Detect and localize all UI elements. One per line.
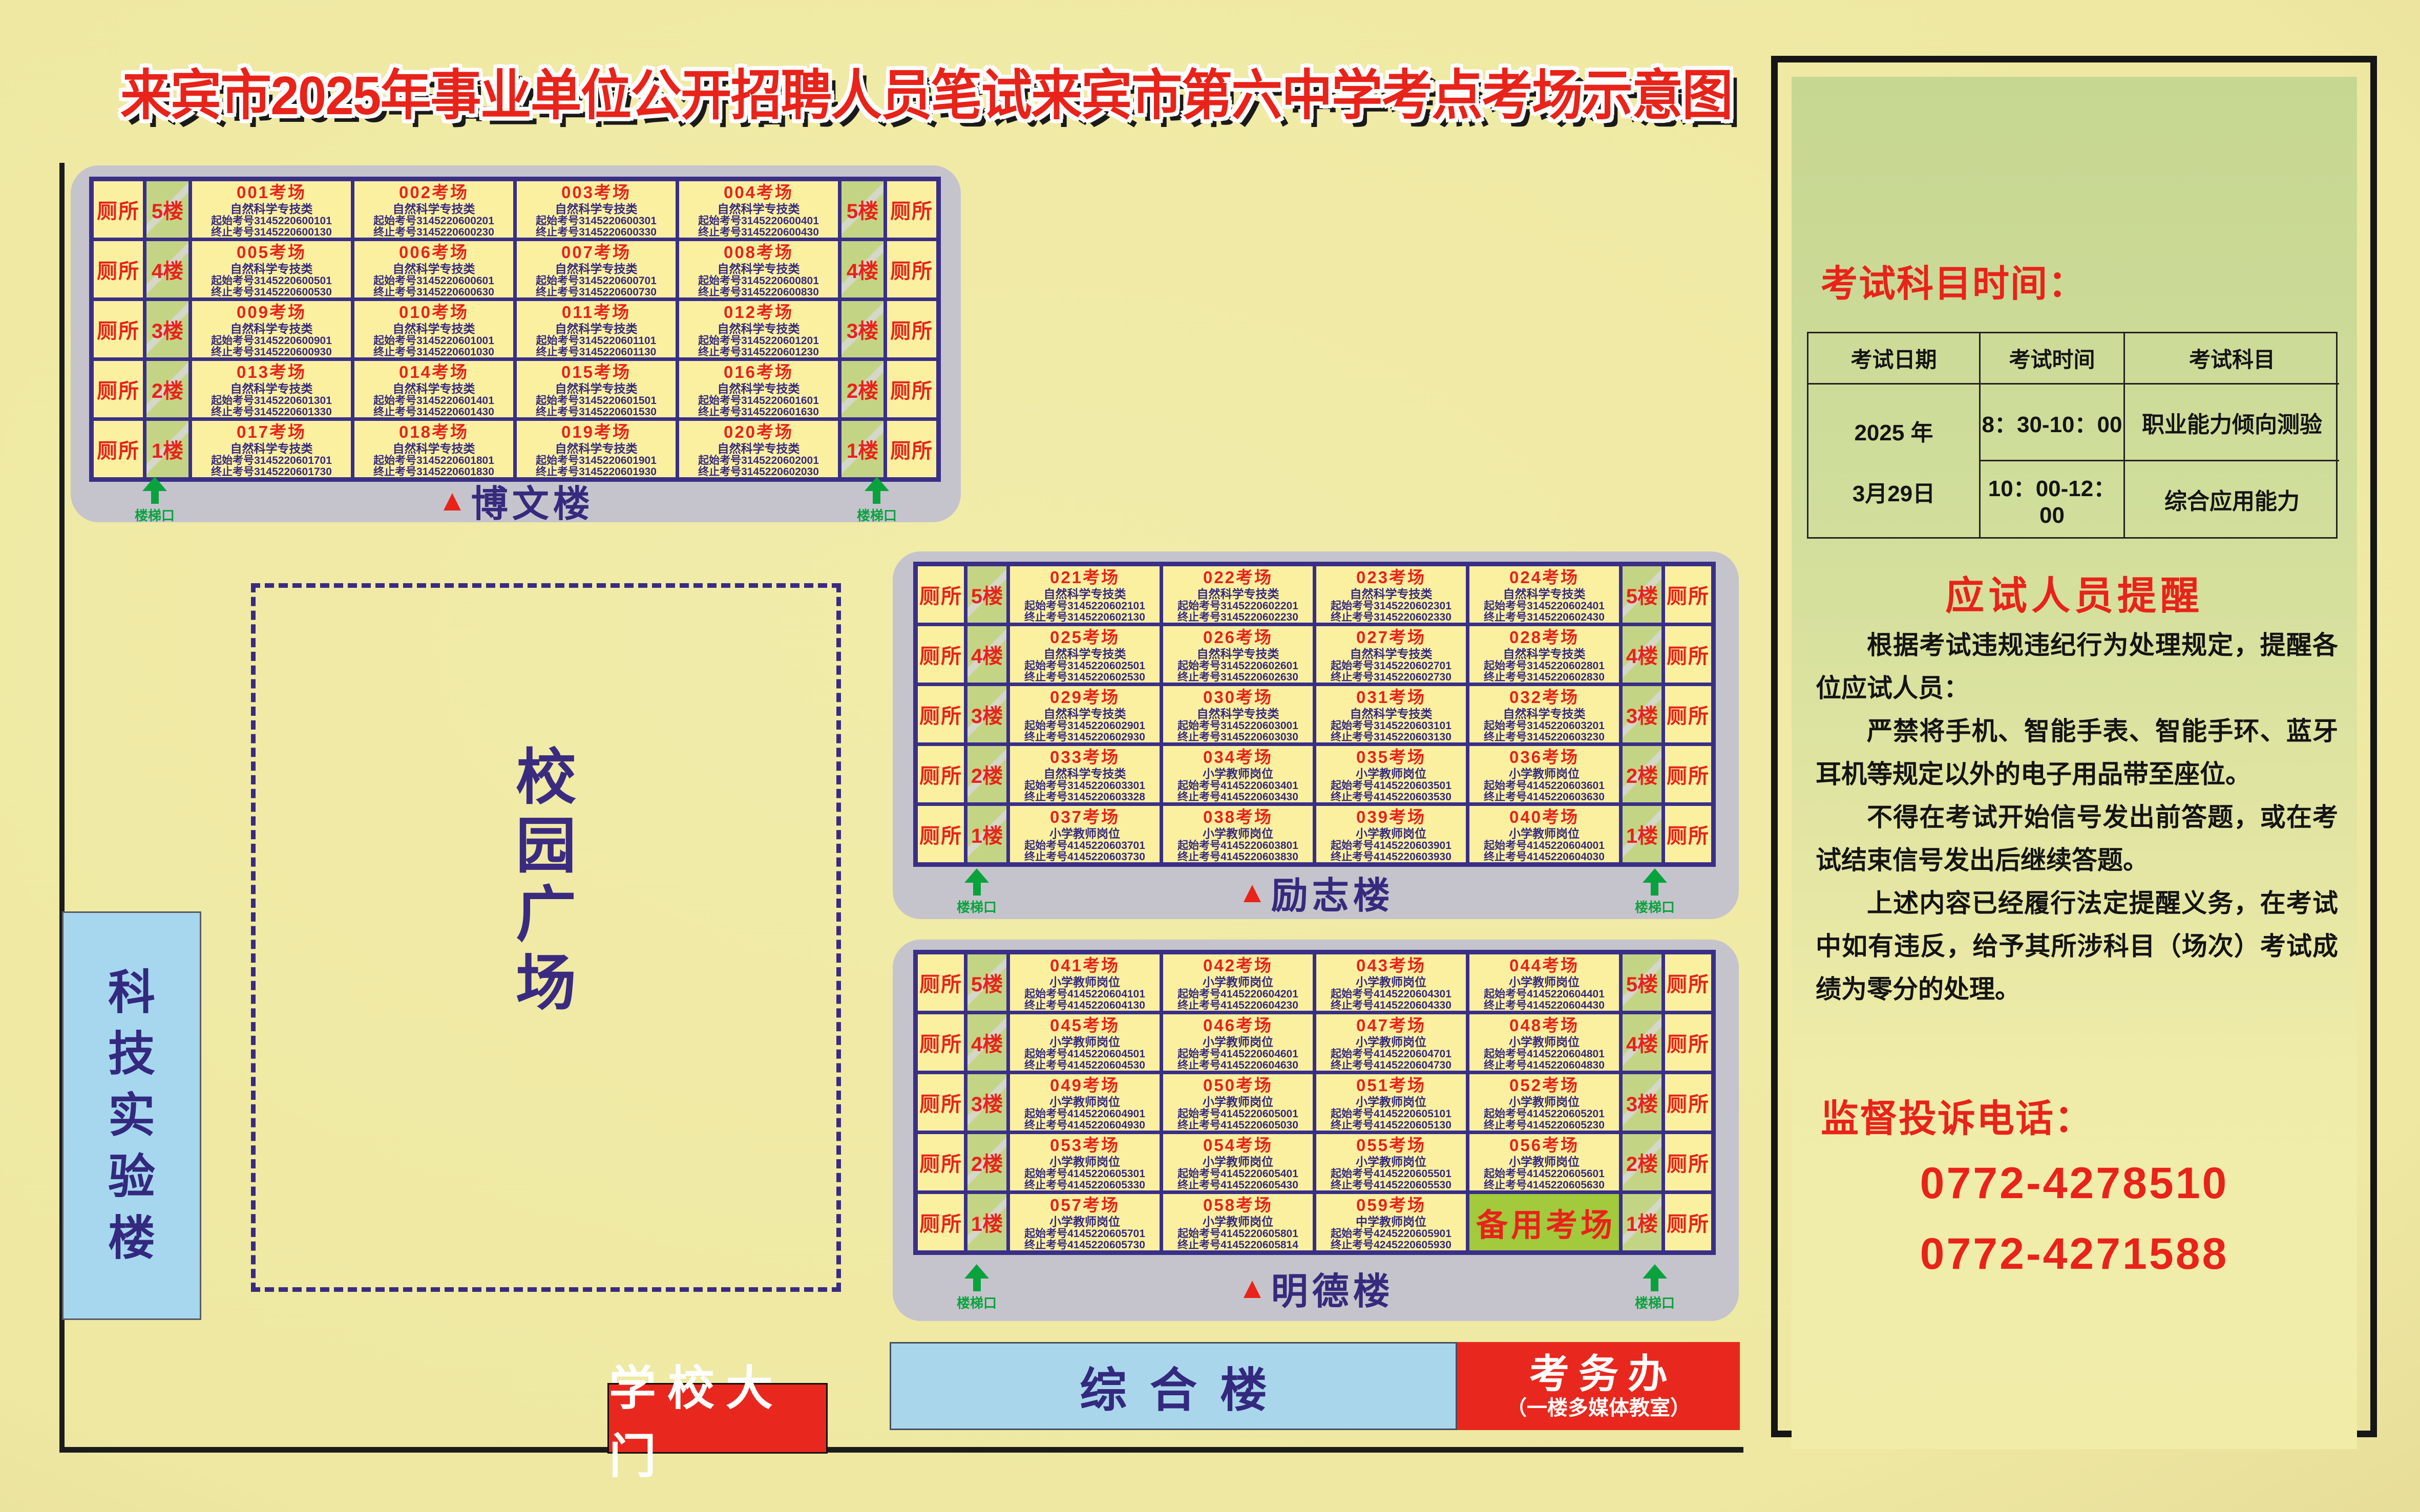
room-cell: 033考场自然科学专技类起始考号3145220603301终止考号3145220…	[1010, 746, 1160, 802]
room-end-number: 终止考号3145220602630	[1177, 672, 1298, 683]
room-number: 046考场	[1203, 1016, 1273, 1035]
room-category: 自然科学专技类	[230, 382, 313, 395]
room-cell: 029考场自然科学专技类起始考号3145220602901终止考号3145220…	[1010, 686, 1160, 742]
room-start-number: 起始考号3145220601001	[373, 335, 494, 347]
room-cell: 059考场中学教师岗位起始考号4245220605901终止考号42452206…	[1316, 1194, 1466, 1250]
room-category: 小学教师岗位	[1509, 975, 1580, 989]
room-cell: 003考场自然科学专技类起始考号3145220600301终止考号3145220…	[517, 181, 676, 238]
floor-label-cell: 1楼	[146, 421, 188, 477]
room-cell: 001考场自然科学专技类起始考号3145220600101终止考号3145220…	[192, 181, 351, 238]
room-cell: 030考场自然科学专技类起始考号3145220603001终止考号3145220…	[1163, 686, 1313, 742]
floor-label-cell: 2楼	[146, 361, 188, 417]
up-arrow-icon	[1651, 883, 1658, 896]
room-end-number: 终止考号3145220601730	[211, 466, 332, 477]
toilet-cell: 厕所	[94, 361, 143, 417]
stair-exit: 楼梯口	[957, 1264, 997, 1312]
plaza-label-char: 校	[516, 748, 576, 808]
floor-label-cell: 5楼	[1623, 566, 1661, 623]
floor-label-cell: 5楼	[1623, 954, 1661, 1011]
room-start-number: 起始考号4145220604501	[1024, 1049, 1145, 1060]
room-end-number: 终止考号4145220605730	[1024, 1240, 1145, 1250]
room-number: 006考场	[399, 243, 469, 262]
up-arrow-icon	[964, 1264, 989, 1279]
room-cell: 047考场小学教师岗位起始考号4145220604701终止考号41452206…	[1316, 1014, 1466, 1071]
room-end-number: 终止考号3145220600830	[698, 287, 819, 297]
room-start-number: 起始考号3145220601201	[698, 335, 819, 347]
up-arrow-icon	[973, 883, 981, 896]
stair-exit-label: 楼梯口	[957, 897, 997, 916]
room-cell: 008考场自然科学专技类起始考号3145220600801终止考号3145220…	[679, 241, 838, 297]
room-start-number: 起始考号4145220605501	[1331, 1168, 1451, 1180]
room-cell: 039考场小学教师岗位起始考号4145220603901终止考号41452206…	[1316, 806, 1466, 862]
room-end-number: 终止考号3145220600230	[373, 227, 494, 238]
room-start-number: 起始考号3145220602201	[1177, 601, 1298, 612]
science-lab-building: 科技实验楼	[62, 911, 201, 1320]
table-header-cell: 考试科目	[2125, 333, 2339, 385]
floor-label-cell: 4楼	[967, 1014, 1006, 1071]
room-end-number: 终止考号4145220603830	[1177, 851, 1298, 862]
room-end-number: 终止考号4145220604530	[1024, 1060, 1145, 1071]
room-category: 自然科学专技类	[1044, 647, 1126, 661]
room-cell: 004考场自然科学专技类起始考号3145220600401终止考号3145220…	[679, 181, 838, 238]
room-category: 自然科学专技类	[1197, 707, 1279, 720]
toilet-cell: 厕所	[918, 686, 964, 742]
room-number: 043考场	[1356, 956, 1426, 975]
room-end-number: 终止考号4145220605330	[1024, 1180, 1145, 1190]
exam-venue-poster: 来宾市2025年事业单位公开招聘人员笔试来宾市第六中学考点考场示意图 校园广场 …	[0, 0, 2420, 1512]
room-number: 034考场	[1203, 748, 1273, 767]
room-category: 小学教师岗位	[1356, 1035, 1426, 1049]
room-cell: 005考场自然科学专技类起始考号3145220600501终止考号3145220…	[192, 241, 351, 297]
room-end-number: 终止考号3145220600730	[536, 287, 657, 297]
room-end-number: 终止考号3145220603230	[1484, 732, 1605, 742]
room-end-number: 终止考号3145220600530	[211, 287, 332, 297]
room-number: 013考场	[237, 363, 306, 382]
building-lizhi: 厕所5楼021考场自然科学专技类起始考号3145220602101终止考号314…	[893, 551, 1739, 919]
room-number: 020考场	[724, 422, 793, 442]
building-triangle-icon: ▲	[1237, 1271, 1267, 1305]
floor-label-cell: 3楼	[967, 686, 1006, 742]
complex-building-label: 综合楼	[1080, 1352, 1290, 1420]
room-number: 051考场	[1356, 1076, 1426, 1095]
room-number: 033考场	[1050, 748, 1120, 767]
room-start-number: 起始考号4145220605401	[1177, 1168, 1298, 1180]
room-category: 小学教师岗位	[1356, 975, 1426, 989]
reminder-heading: 应试人员提醒	[1792, 564, 2357, 621]
room-cell: 021考场自然科学专技类起始考号3145220602101终止考号3145220…	[1010, 566, 1160, 623]
room-end-number: 终止考号3145220602130	[1024, 612, 1145, 623]
room-number: 035考场	[1356, 748, 1426, 767]
room-start-number: 起始考号4145220604901	[1024, 1109, 1145, 1120]
room-end-number: 终止考号3145220602230	[1177, 612, 1298, 623]
room-start-number: 起始考号3145220602301	[1331, 601, 1451, 612]
toilet-cell: 厕所	[1665, 686, 1711, 742]
complex-building: 综合楼	[890, 1342, 1457, 1430]
toilet-cell: 厕所	[887, 301, 936, 357]
floor-label-cell: 2楼	[1623, 1134, 1661, 1190]
room-category: 自然科学专技类	[1044, 707, 1126, 720]
room-number: 037考场	[1050, 807, 1120, 827]
room-category: 小学教师岗位	[1203, 1215, 1273, 1228]
room-end-number: 终止考号4145220605630	[1484, 1180, 1605, 1190]
building-name: ▲博文楼	[437, 474, 594, 527]
room-cell: 031考场自然科学专技类起始考号3145220603101终止考号3145220…	[1316, 686, 1466, 742]
room-category: 自然科学专技类	[1503, 647, 1586, 661]
toilet-cell: 厕所	[1665, 1134, 1711, 1190]
building-triangle-icon: ▲	[437, 483, 467, 518]
floor-label-cell: 1楼	[841, 421, 883, 477]
stair-exit-label: 楼梯口	[957, 1293, 997, 1312]
room-cell: 018考场自然科学专技类起始考号3145220601801终止考号3145220…	[354, 421, 513, 477]
toilet-cell: 厕所	[1665, 746, 1711, 802]
room-start-number: 起始考号4145220605701	[1024, 1228, 1145, 1240]
room-category: 自然科学专技类	[718, 442, 800, 455]
floor-label-cell: 4楼	[967, 626, 1006, 683]
room-number: 026考场	[1203, 628, 1273, 647]
building-name-label: 励志楼	[1271, 865, 1394, 919]
up-arrow-icon	[865, 477, 889, 491]
room-start-number: 起始考号3145220601601	[698, 395, 819, 407]
room-number: 041考场	[1050, 956, 1120, 975]
room-end-number: 终止考号3145220601630	[698, 407, 819, 417]
room-start-number: 起始考号3145220601401	[373, 395, 494, 407]
floor-label-cell: 3楼	[1623, 686, 1661, 742]
building-grid: 厕所5楼001考场自然科学专技类起始考号3145220600101终止考号314…	[89, 177, 941, 482]
room-end-number: 终止考号3145220601230	[698, 347, 819, 357]
room-number: 001考场	[237, 183, 306, 202]
room-number: 054考场	[1203, 1136, 1273, 1155]
stair-exit-label: 楼梯口	[1635, 1293, 1675, 1312]
room-start-number: 起始考号3145220600901	[211, 335, 332, 347]
room-end-number: 终止考号3145220600130	[211, 227, 332, 238]
room-cell: 014考场自然科学专技类起始考号3145220601401终止考号3145220…	[354, 361, 513, 417]
toilet-cell: 厕所	[887, 421, 936, 477]
room-number: 049考场	[1050, 1076, 1120, 1095]
room-cell: 042考场小学教师岗位起始考号4145220604201终止考号41452206…	[1163, 954, 1313, 1011]
room-category: 小学教师岗位	[1356, 827, 1426, 840]
floor-label-cell: 5楼	[841, 181, 883, 238]
room-end-number: 终止考号3145220602030	[698, 466, 819, 477]
room-category: 自然科学专技类	[1503, 587, 1586, 601]
floor-label-cell: 5楼	[967, 566, 1006, 623]
room-end-number: 终止考号3145220603030	[1177, 732, 1298, 742]
toilet-cell: 厕所	[887, 361, 936, 417]
table-subject-cell: 综合应用能力	[2125, 461, 2339, 537]
stair-exit: 楼梯口	[1635, 868, 1675, 916]
toilet-cell: 厕所	[918, 1014, 964, 1071]
room-number: 045考场	[1050, 1016, 1120, 1035]
toilet-cell: 厕所	[1665, 1014, 1711, 1071]
reserve-room-label: 备用考场	[1476, 1199, 1615, 1245]
up-arrow-icon	[1643, 868, 1667, 883]
room-category: 自然科学专技类	[230, 262, 313, 275]
room-category: 自然科学专技类	[718, 262, 800, 275]
room-cell: 048考场小学教师岗位起始考号4145220604801终止考号41452206…	[1469, 1014, 1619, 1071]
room-cell: 041考场小学教师岗位起始考号4145220604101终止考号41452206…	[1010, 954, 1160, 1011]
toilet-cell: 厕所	[94, 421, 143, 477]
room-start-number: 起始考号4145220605601	[1484, 1168, 1605, 1180]
floor-label-cell: 3楼	[841, 301, 883, 357]
room-start-number: 起始考号4145220604601	[1177, 1049, 1298, 1060]
room-start-number: 起始考号4145220604201	[1177, 989, 1298, 1000]
floor-label-cell: 5楼	[967, 954, 1006, 1011]
school-gate: 学校大门	[607, 1383, 828, 1454]
room-end-number: 终止考号4145220605530	[1331, 1180, 1451, 1190]
building-bottom-strip: 楼梯口▲博文楼楼梯口	[71, 480, 961, 520]
room-number: 007考场	[561, 243, 631, 262]
room-category: 自然科学专技类	[718, 382, 800, 395]
room-start-number: 起始考号4145220604101	[1024, 989, 1145, 1000]
room-start-number: 起始考号4145220605801	[1177, 1228, 1298, 1240]
exam-office: 考务办 （一楼多媒体教室）	[1457, 1342, 1740, 1430]
table-header-cell: 考试日期	[1808, 333, 1981, 385]
room-end-number: 终止考号4245220605930	[1331, 1240, 1451, 1250]
room-number: 027考场	[1356, 628, 1426, 647]
floor-label-cell: 1楼	[967, 806, 1006, 862]
room-cell: 010考场自然科学专技类起始考号3145220601001终止考号3145220…	[354, 301, 513, 357]
stair-exit-label: 楼梯口	[135, 505, 175, 524]
room-category: 自然科学专技类	[1350, 587, 1433, 601]
toilet-cell: 厕所	[1665, 566, 1711, 623]
room-start-number: 起始考号3145220600501	[211, 275, 332, 287]
room-category: 自然科学专技类	[393, 382, 475, 395]
floor-label-cell: 5楼	[146, 181, 188, 238]
room-start-number: 起始考号4145220605001	[1177, 1109, 1298, 1120]
toilet-cell: 厕所	[918, 626, 964, 683]
complaint-heading: 监督投诉电话：	[1821, 1088, 2093, 1143]
room-cell: 035考场小学教师岗位起始考号4145220603501终止考号41452206…	[1316, 746, 1466, 802]
floor-label-cell: 3楼	[146, 301, 188, 357]
room-cell: 006考场自然科学专技类起始考号3145220600601终止考号3145220…	[354, 241, 513, 297]
room-category: 小学教师岗位	[1049, 1035, 1120, 1049]
toilet-cell: 厕所	[94, 181, 143, 238]
room-cell: 011考场自然科学专技类起始考号3145220601101终止考号3145220…	[517, 301, 676, 357]
building-name-label: 明德楼	[1271, 1261, 1394, 1315]
room-category: 小学教师岗位	[1049, 1095, 1120, 1109]
plaza-label-char: 广	[516, 885, 576, 945]
room-end-number: 终止考号3145220600930	[211, 347, 332, 357]
room-category: 小学教师岗位	[1509, 767, 1580, 780]
up-arrow-icon	[973, 1279, 981, 1291]
room-category: 自然科学专技类	[555, 382, 638, 395]
room-number: 017考场	[237, 422, 306, 442]
room-category: 自然科学专技类	[1044, 767, 1126, 780]
building-name-label: 博文楼	[471, 474, 594, 527]
room-cell: 055考场小学教师岗位起始考号4145220605501终止考号41452206…	[1316, 1134, 1466, 1190]
phone-number: 0772-4271588	[1792, 1219, 2357, 1289]
reminder-paragraph: 不得在考试开始信号发出前答题，或在考试结束信号发出后继续答题。	[1816, 796, 2338, 882]
room-cell: 050考场小学教师岗位起始考号4145220605001终止考号41452206…	[1163, 1074, 1313, 1131]
room-cell: 049考场小学教师岗位起始考号4145220604901终止考号41452206…	[1010, 1074, 1160, 1131]
room-cell: 038考场小学教师岗位起始考号4145220603801终止考号41452206…	[1163, 806, 1313, 862]
room-cell: 026考场自然科学专技类起始考号3145220602601终止考号3145220…	[1163, 626, 1313, 683]
room-cell: 040考场小学教师岗位起始考号4145220604001终止考号41452206…	[1469, 806, 1619, 862]
phone-number: 0772-4278510	[1792, 1148, 2357, 1219]
room-start-number: 起始考号4145220604801	[1484, 1049, 1605, 1060]
room-category: 小学教师岗位	[1356, 767, 1426, 780]
room-number: 057考场	[1050, 1196, 1120, 1215]
room-cell: 015考场自然科学专技类起始考号3145220601501终止考号3145220…	[517, 361, 676, 417]
room-cell: 052考场小学教师岗位起始考号4145220605201终止考号41452206…	[1469, 1074, 1619, 1131]
room-start-number: 起始考号3145220600601	[373, 275, 494, 287]
up-arrow-icon	[142, 477, 167, 491]
room-end-number: 终止考号3145220601430	[373, 407, 494, 417]
room-cell: 056考场小学教师岗位起始考号4145220605601终止考号41452206…	[1469, 1134, 1619, 1190]
room-category: 小学教师岗位	[1356, 1095, 1426, 1109]
room-start-number: 起始考号4145220603801	[1177, 840, 1298, 851]
room-category: 自然科学专技类	[1044, 587, 1126, 601]
room-number: 053考场	[1050, 1136, 1120, 1155]
room-number: 004考场	[724, 183, 793, 202]
room-end-number: 终止考号4145220604330	[1331, 1000, 1451, 1011]
room-number: 029考场	[1050, 688, 1120, 707]
room-start-number: 起始考号3145220600101	[211, 216, 332, 227]
stair-exit: 楼梯口	[1635, 1264, 1675, 1312]
room-end-number: 终止考号3145220601330	[211, 407, 332, 417]
room-number: 036考场	[1509, 748, 1579, 767]
up-arrow-icon	[964, 868, 989, 883]
floor-label-cell: 2楼	[967, 746, 1006, 802]
room-cell: 023考场自然科学专技类起始考号3145220602301终止考号3145220…	[1316, 566, 1466, 623]
floor-label-cell: 4楼	[146, 241, 188, 297]
room-end-number: 终止考号4145220604430	[1484, 1000, 1605, 1011]
room-start-number: 起始考号3145220601701	[211, 455, 332, 466]
building-grid: 厕所5楼021考场自然科学专技类起始考号3145220602101终止考号314…	[913, 562, 1716, 867]
toilet-cell: 厕所	[887, 181, 936, 238]
room-start-number: 起始考号4145220605201	[1484, 1109, 1605, 1120]
room-start-number: 起始考号3145220600401	[698, 216, 819, 227]
up-arrow-icon	[873, 491, 880, 504]
room-cell: 022考场自然科学专技类起始考号3145220602201终止考号3145220…	[1163, 566, 1313, 623]
room-cell: 013考场自然科学专技类起始考号3145220601301终止考号3145220…	[192, 361, 351, 417]
reminder-paragraph: 严禁将手机、智能手表、智能手环、蓝牙耳机等规定以外的电子用品带至座位。	[1816, 710, 2338, 796]
room-number: 025考场	[1050, 628, 1120, 647]
room-category: 小学教师岗位	[1203, 1155, 1273, 1168]
room-number: 058考场	[1203, 1196, 1273, 1215]
room-start-number: 起始考号4145220604701	[1331, 1049, 1451, 1060]
room-category: 小学教师岗位	[1203, 1095, 1273, 1109]
plaza-label-char: 场	[516, 953, 576, 1014]
room-cell: 002考场自然科学专技类起始考号3145220600201终止考号3145220…	[354, 181, 513, 238]
room-end-number: 终止考号4145220603430	[1177, 792, 1298, 802]
table-time-cell: 10：00-12：00	[1981, 461, 2125, 537]
room-end-number: 终止考号4145220603530	[1331, 792, 1451, 802]
room-category: 自然科学专技类	[230, 202, 313, 216]
room-end-number: 终止考号3145220600430	[698, 227, 819, 238]
room-category: 自然科学专技类	[1197, 587, 1279, 601]
room-cell: 020考场自然科学专技类起始考号3145220602001终止考号3145220…	[679, 421, 838, 477]
room-number: 022考场	[1203, 568, 1273, 587]
reminder-paragraph: 根据考试违规违纪行为处理规定，提醒各位应试人员：	[1816, 624, 2338, 710]
room-start-number: 起始考号3145220603101	[1331, 720, 1451, 732]
room-start-number: 起始考号3145220600801	[698, 275, 819, 287]
room-category: 小学教师岗位	[1203, 1035, 1273, 1049]
science-building-label-char: 实	[108, 1092, 155, 1139]
room-end-number: 终止考号4145220605814	[1177, 1240, 1298, 1250]
room-number: 008考场	[724, 243, 793, 262]
room-category: 小学教师岗位	[1509, 1155, 1580, 1168]
toilet-cell: 厕所	[918, 1134, 964, 1190]
room-category: 小学教师岗位	[1509, 1035, 1580, 1049]
room-number: 012考场	[724, 303, 793, 322]
room-end-number: 终止考号3145220603328	[1024, 792, 1145, 802]
room-end-number: 终止考号4145220605130	[1331, 1120, 1451, 1131]
toilet-cell: 厕所	[1665, 1194, 1711, 1250]
room-number: 032考场	[1509, 688, 1579, 707]
building-name: ▲励志楼	[1237, 865, 1394, 919]
toilet-cell: 厕所	[94, 301, 143, 357]
table-subject-cell: 职业能力倾向测验	[2125, 385, 2339, 461]
toilet-cell: 厕所	[918, 954, 964, 1011]
room-end-number: 终止考号4145220604930	[1024, 1120, 1145, 1131]
room-category: 小学教师岗位	[1203, 975, 1273, 989]
room-start-number: 起始考号4145220605301	[1024, 1168, 1145, 1180]
room-category: 小学教师岗位	[1356, 1155, 1426, 1168]
toilet-cell: 厕所	[918, 746, 964, 802]
reminder-paragraphs: 根据考试违规违纪行为处理规定，提醒各位应试人员：严禁将手机、智能手表、智能手环、…	[1816, 624, 2338, 1011]
room-cell: 054考场小学教师岗位起始考号4145220605401终止考号41452206…	[1163, 1134, 1313, 1190]
room-number: 052考场	[1509, 1076, 1579, 1095]
room-number: 048考场	[1509, 1016, 1579, 1035]
room-cell: 009考场自然科学专技类起始考号3145220600901终止考号3145220…	[192, 301, 351, 357]
room-cell: 034考场小学教师岗位起始考号4145220603401终止考号41452206…	[1163, 746, 1313, 802]
room-cell: 057考场小学教师岗位起始考号4145220605701终止考号41452206…	[1010, 1194, 1160, 1250]
campus-plaza-label: 校园广场	[251, 748, 841, 1014]
room-number: 028考场	[1509, 628, 1579, 647]
room-cell: 019考场自然科学专技类起始考号3145220601901终止考号3145220…	[517, 421, 676, 477]
schedule-table: 考试日期考试时间考试科目2025 年3月29日8：30-10：00职业能力倾向测…	[1807, 332, 2338, 539]
room-end-number: 终止考号4145220604230	[1177, 1000, 1298, 1011]
room-end-number: 终止考号4145220603630	[1484, 792, 1605, 802]
room-number: 005考场	[237, 243, 306, 262]
room-end-number: 终止考号3145220601130	[536, 347, 657, 357]
room-category: 小学教师岗位	[1203, 767, 1273, 780]
floor-label-cell: 4楼	[1623, 1014, 1661, 1071]
room-cell: 058考场小学教师岗位起始考号4145220605801终止考号41452206…	[1163, 1194, 1313, 1250]
room-end-number: 终止考号4145220604030	[1484, 851, 1605, 862]
room-cell: 045考场小学教师岗位起始考号4145220604501终止考号41452206…	[1010, 1014, 1160, 1071]
room-number: 030考场	[1203, 688, 1273, 707]
room-cell: 046考场小学教师岗位起始考号4145220604601终止考号41452206…	[1163, 1014, 1313, 1071]
room-category: 自然科学专技类	[393, 322, 475, 335]
up-arrow-icon	[1643, 1264, 1667, 1279]
room-category: 小学教师岗位	[1509, 1095, 1580, 1109]
room-end-number: 终止考号3145220603130	[1331, 732, 1451, 742]
room-number: 002考场	[399, 183, 469, 202]
room-category: 自然科学专技类	[718, 322, 800, 335]
room-category: 自然科学专技类	[555, 442, 638, 455]
room-start-number: 起始考号3145220602001	[698, 455, 819, 466]
table-date-line: 2025 年	[1854, 414, 1933, 447]
room-category: 中学教师岗位	[1356, 1215, 1426, 1228]
room-category: 自然科学专技类	[1197, 647, 1279, 661]
room-start-number: 起始考号3145220600701	[536, 275, 657, 287]
table-time-cell: 8：30-10：00	[1981, 385, 2125, 461]
toilet-cell: 厕所	[918, 806, 964, 862]
room-start-number: 起始考号3145220601801	[373, 455, 494, 466]
room-cell: 012考场自然科学专技类起始考号3145220601201终止考号3145220…	[679, 301, 838, 357]
room-number: 038考场	[1203, 807, 1273, 827]
room-cell: 043考场小学教师岗位起始考号4145220604301终止考号41452206…	[1316, 954, 1466, 1011]
toilet-cell: 厕所	[1665, 806, 1711, 862]
floor-label-cell: 3楼	[1623, 1074, 1661, 1131]
room-cell: 027考场自然科学专技类起始考号3145220602701终止考号3145220…	[1316, 626, 1466, 683]
floor-label-cell: 1楼	[1623, 806, 1661, 862]
toilet-cell: 厕所	[1665, 1074, 1711, 1131]
room-category: 小学教师岗位	[1509, 827, 1580, 840]
table-date-line: 3月29日	[1853, 475, 1935, 508]
room-end-number: 终止考号3145220600630	[373, 287, 494, 297]
